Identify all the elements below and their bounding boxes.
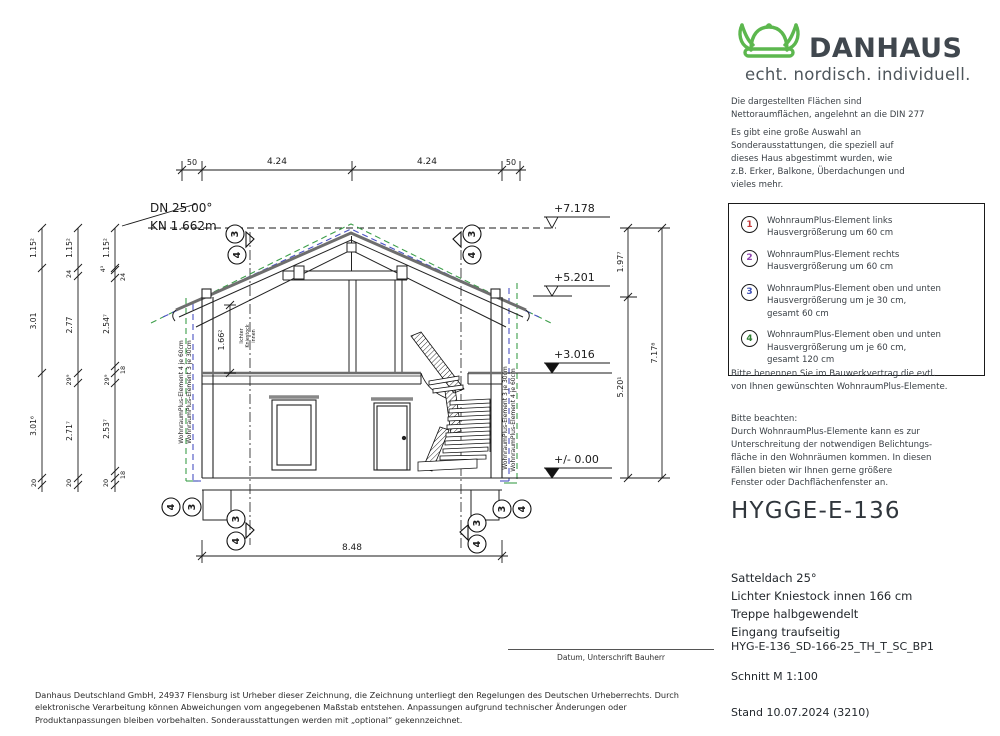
- chain-c-8: 18: [119, 471, 127, 479]
- legend-number-1: 1: [741, 216, 758, 233]
- kniestock-dim-value: 1.66²: [217, 329, 226, 350]
- chain-c-3: 24: [119, 273, 127, 281]
- svg-text:3: 3: [187, 504, 198, 511]
- contract-note: Bitte benennen Sie im Bauwerkvertrag die…: [731, 368, 987, 394]
- chain-a-4: 20: [30, 479, 38, 487]
- plus-label-right-blue: WohnraumPlus-Element 3 je 30cm: [502, 366, 509, 470]
- model-code: HYG-E-136_SD-166-25_TH_T_SC_BP1: [731, 640, 934, 653]
- roof-pitch-label: DN 25.00°: [150, 201, 212, 215]
- dim-424-left: 4.24: [267, 157, 287, 167]
- legend-item-3: 3 WohnraumPlus-Element oben und unten Ha…: [741, 283, 976, 320]
- chain-a-2: 3.01: [29, 312, 38, 329]
- level-7178: +7.178: [554, 202, 595, 215]
- legend-number-2: 2: [741, 250, 758, 267]
- attention-note-line5: Fenster oder Dachflächenfenster an.: [731, 477, 987, 490]
- wohnraumplus-legend-box: 1 WohnraumPlus-Element links Hausvergröß…: [728, 203, 985, 376]
- legend-item-1-line2: Hausvergrößerung um 60 cm: [767, 227, 893, 239]
- kniestock-label: KN 1.662m: [150, 219, 217, 233]
- revision-date: Stand 10.07.2024 (3210): [731, 706, 870, 719]
- areas-note-line1: Die dargestellten Flächen sind: [731, 96, 987, 109]
- staircase: [411, 332, 490, 471]
- chain-c-9: 20: [102, 479, 110, 487]
- right-dim-197: 1.97⁷: [616, 251, 625, 272]
- signature-label: Datum, Unterschrift Bauherr: [508, 653, 714, 662]
- attention-note-line4: Fällen bieten wir Ihnen gerne größere: [731, 465, 987, 478]
- legend-item-3-line2: Hausvergrößerung um je 30 cm,: [767, 295, 941, 307]
- legend-item-2: 2 WohnraumPlus-Element rechts Hausvergrö…: [741, 249, 976, 274]
- attention-note-line3: fläche in den Wohnräumen kommen. In dies…: [731, 452, 987, 465]
- contract-note-line1: Bitte benennen Sie im Bauwerkvertrag die…: [731, 368, 987, 381]
- right-dim-717: 7.17⁸: [650, 342, 659, 363]
- chain-c-1: 1.15²: [102, 238, 111, 258]
- legend-item-2-line1: WohnraumPlus-Element rechts: [767, 249, 899, 261]
- chain-b-1: 1.15²: [65, 238, 74, 258]
- level-000: +/- 0.00: [554, 453, 599, 466]
- attention-note: Bitte beachten: Durch WohnraumPlus-Eleme…: [731, 413, 987, 490]
- kniestock-note-3: innen: [251, 329, 257, 342]
- chain-c-4: 2.54⁷: [102, 314, 111, 334]
- bottom-dim-value: 8.48: [342, 543, 362, 553]
- contract-note-line2: von Ihnen gewünschten WohnraumPlus-Eleme…: [731, 381, 987, 394]
- chain-b-6: 20: [65, 479, 73, 487]
- areas-note-line2: Nettoraumflächen, angelehnt an die DIN 2…: [731, 109, 987, 122]
- left-dim-chains: [38, 224, 119, 492]
- drawing-sheet: 50 4.24 4.24 50 DN 25.00° KN 1.662m Wohn…: [0, 0, 1000, 736]
- level-5201: +5.201: [554, 271, 595, 284]
- plus-label-right-green: WohnraumPlus-Element 4 je 60cm: [510, 368, 517, 472]
- model-title: HYGGE-E-136: [731, 498, 901, 524]
- dim-50-right: 50: [506, 158, 516, 167]
- spec-roof: Satteldach 25°: [731, 570, 912, 588]
- svg-text:3: 3: [497, 506, 508, 513]
- dim-424-right: 4.24: [417, 157, 437, 167]
- brand-tagline: echt. nordisch. individuell.: [734, 65, 990, 84]
- wohnraumplus-lines: [186, 283, 517, 483]
- svg-text:4: 4: [232, 251, 243, 258]
- dim-50-left: 50: [187, 158, 197, 167]
- chain-c-2: 4³: [100, 265, 107, 272]
- top-dimension: [176, 161, 526, 181]
- areas-note: Die dargestellten Flächen sind Nettoraum…: [731, 96, 987, 122]
- collar-beam: [283, 266, 407, 373]
- signature-line: [508, 649, 714, 650]
- legend-item-4-line3: gesamt 120 cm: [767, 354, 941, 366]
- legend-item-4: 4 WohnraumPlus-Element oben und unten Ha…: [741, 329, 976, 366]
- options-intro: Es gibt eine große Auswahl an Sonderauss…: [731, 127, 987, 191]
- window: [269, 397, 319, 470]
- legend-item-3-line1: WohnraumPlus-Element oben und unten: [767, 283, 941, 295]
- chain-c-7: 2.53⁷: [102, 419, 111, 439]
- brand-name: DANHAUS: [809, 35, 962, 62]
- attention-note-heading: Bitte beachten:: [731, 413, 987, 426]
- chain-b-5: 2.71⁷: [65, 421, 74, 441]
- attention-note-line2: Unterschreitung der notwendigen Belichtu…: [731, 439, 987, 452]
- plus-label-left-blue: WohnraumPlus-Element 3 je 30cm: [186, 340, 193, 444]
- view-label: Schnitt M 1:100: [731, 670, 818, 683]
- kniestock-note-1: lichter: [239, 328, 245, 343]
- chain-c-5: 18: [119, 366, 127, 374]
- svg-text:4: 4: [231, 537, 242, 544]
- chain-a-1: 1.15²: [29, 238, 38, 258]
- legend-item-4-line2: Hausvergrößerung um je 60 cm,: [767, 342, 941, 354]
- svg-text:3: 3: [467, 231, 478, 238]
- spec-kniestock: Lichter Kniestock innen 166 cm: [731, 588, 912, 606]
- axis-lines: [250, 232, 461, 548]
- chain-a-3: 3.01⁶: [29, 416, 38, 436]
- door: [371, 399, 413, 470]
- viking-helmet-icon: [734, 20, 804, 62]
- chain-b-3: 2.77: [65, 316, 74, 333]
- legend-item-3-line3: gesamt 60 cm: [767, 308, 941, 320]
- legend-number-4: 4: [741, 330, 758, 347]
- svg-text:3: 3: [231, 516, 242, 523]
- svg-text:4: 4: [166, 503, 177, 510]
- model-specs: Satteldach 25° Lichter Kniestock innen 1…: [731, 570, 912, 642]
- svg-text:4: 4: [467, 251, 478, 258]
- legend-item-1-line1: WohnraumPlus-Element links: [767, 215, 893, 227]
- svg-text:3: 3: [472, 520, 483, 527]
- door-handle: [402, 436, 405, 439]
- options-intro-line4: z.B. Erker, Balkone, Überdachungen und: [731, 166, 987, 179]
- right-dim-chains: [620, 224, 670, 482]
- svg-text:4: 4: [517, 505, 528, 512]
- options-intro-line5: vieles mehr.: [731, 179, 987, 192]
- svg-text:3: 3: [230, 231, 241, 238]
- options-intro-line3: dieses Haus abgestimmt wurden, wie: [731, 153, 987, 166]
- right-dim-520: 5.20¹: [616, 376, 625, 397]
- legend-item-4-line1: WohnraumPlus-Element oben und unten: [767, 329, 941, 341]
- kniestock-note-2: Kniestock: [245, 324, 251, 347]
- spec-stairs: Treppe halbgewendelt: [731, 606, 912, 624]
- signature-block: Datum, Unterschrift Bauherr: [508, 649, 714, 662]
- level-3016: +3.016: [554, 348, 595, 361]
- options-intro-line2: Sonderausstattungen, die speziell auf: [731, 140, 987, 153]
- legend-number-3: 3: [741, 284, 758, 301]
- legend-item-2-line2: Hausvergrößerung um 60 cm: [767, 261, 899, 273]
- attention-note-line1: Durch WohnraumPlus-Elemente kann es zur: [731, 426, 987, 439]
- chain-b-2: 24: [65, 270, 73, 278]
- chain-c-6: 29⁹: [103, 374, 111, 385]
- chain-b-4: 29⁹: [65, 374, 73, 385]
- copyright-footer: Danhaus Deutschland GmbH, 24937 Flensbur…: [35, 689, 685, 726]
- foundation: [202, 478, 502, 520]
- options-intro-line1: Es gibt eine große Auswahl an: [731, 127, 987, 140]
- legend-item-1: 1 WohnraumPlus-Element links Hausvergröß…: [741, 215, 976, 240]
- brand-block: DANHAUS echt. nordisch. individuell.: [734, 20, 990, 84]
- plus-label-left-green: WohnraumPlus-Element 4 je 60cm: [178, 340, 185, 444]
- svg-text:4: 4: [472, 540, 483, 547]
